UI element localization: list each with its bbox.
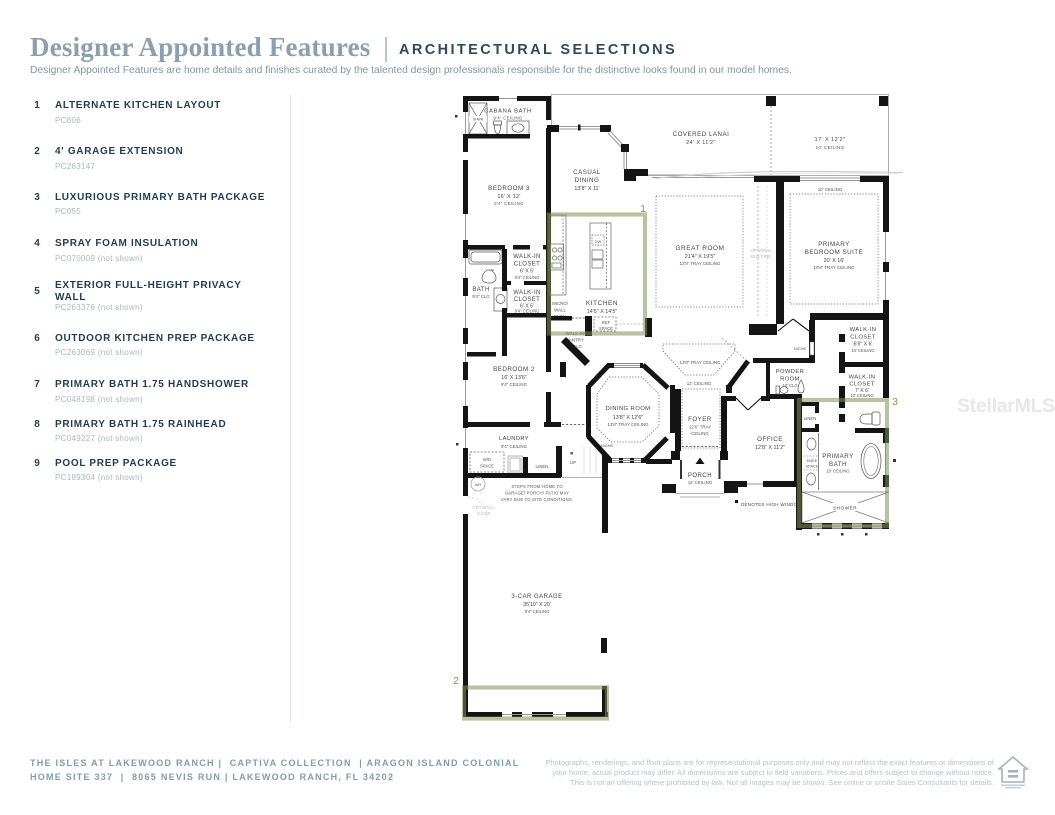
- svg-text:KNEE: KNEE: [807, 458, 818, 463]
- svg-text:CLOSET: CLOSET: [849, 382, 875, 388]
- svg-text:LINEN: LINEN: [536, 464, 549, 469]
- svg-text:6'6" X 6': 6'6" X 6': [854, 342, 873, 348]
- svg-text:VARY DUE TO SITE CONDITIONS.: VARY DUE TO SITE CONDITIONS.: [501, 497, 573, 502]
- svg-text:6' X 5': 6' X 5': [520, 269, 534, 275]
- svg-text:OFFICE: OFFICE: [757, 436, 783, 443]
- svg-text:FOYER: FOYER: [688, 416, 712, 423]
- svg-text:BEDROOM SUITE: BEDROOM SUITE: [805, 249, 863, 256]
- svg-text:PRIMARY: PRIMARY: [818, 241, 850, 248]
- svg-text:LINEN: LINEN: [804, 416, 816, 421]
- svg-text:10'8" TRAY CEILING: 10'8" TRAY CEILING: [814, 265, 856, 270]
- svg-text:GARAGE/ PORCH/ PATIO MAY: GARAGE/ PORCH/ PATIO MAY: [505, 491, 569, 496]
- svg-text:10' CLG: 10' CLG: [782, 383, 797, 388]
- svg-text:DINING ROOM: DINING ROOM: [606, 406, 651, 412]
- svg-text:DINING: DINING: [575, 177, 600, 184]
- svg-text:10' CEILING: 10' CEILING: [826, 469, 849, 474]
- svg-text:COVERED LANAI: COVERED LANAI: [673, 131, 730, 138]
- svg-text:13'8" TRAY CEILING: 13'8" TRAY CEILING: [680, 360, 722, 365]
- svg-text:DENOTES HIGH WINDOW: DENOTES HIGH WINDOW: [741, 502, 802, 507]
- svg-text:1: 1: [640, 203, 646, 215]
- svg-text:10' CEILING: 10' CEILING: [850, 393, 873, 398]
- svg-text:9'4" CEILING: 9'4" CEILING: [501, 444, 528, 449]
- svg-text:17' X 12'2": 17' X 12'2": [815, 137, 846, 143]
- svg-text:16' X 12': 16' X 12': [497, 194, 520, 200]
- svg-text:POWDER: POWDER: [776, 369, 805, 375]
- svg-text:OPTIONAL: OPTIONAL: [750, 248, 772, 253]
- svg-text:STEPS FROM HOME TO: STEPS FROM HOME TO: [511, 484, 563, 489]
- svg-text:BEDROOM 2: BEDROOM 2: [493, 366, 535, 373]
- svg-text:WH: WH: [475, 483, 482, 487]
- svg-text:10' CEILING: 10' CEILING: [818, 187, 843, 192]
- svg-text:BEDROOM 3: BEDROOM 3: [488, 185, 530, 192]
- svg-text:12'8" TRAY CEILING: 12'8" TRAY CEILING: [608, 422, 650, 427]
- svg-text:WALK-IN: WALK-IN: [849, 375, 876, 381]
- svg-text:PRIMARY: PRIMARY: [822, 453, 854, 460]
- svg-text:9'4" CEILING: 9'4" CEILING: [501, 382, 528, 387]
- svg-text:WALK-IN: WALK-IN: [513, 290, 541, 296]
- svg-text:9'4" CEILING: 9'4" CEILING: [515, 275, 540, 280]
- svg-text:3: 3: [892, 396, 898, 408]
- svg-text:35'10" X 20': 35'10" X 20': [523, 602, 550, 608]
- svg-text:KITCHEN: KITCHEN: [586, 300, 618, 307]
- svg-text:LAUNDRY: LAUNDRY: [499, 436, 529, 442]
- svg-text:OPTIONAL: OPTIONAL: [472, 505, 496, 510]
- svg-text:13'8" X 12'6": 13'8" X 12'6": [613, 415, 644, 421]
- svg-text:UP: UP: [570, 460, 576, 465]
- svg-text:WALL: WALL: [554, 308, 566, 313]
- svg-text:BATH: BATH: [829, 461, 847, 468]
- svg-text:SHOWER: SHOWER: [833, 506, 857, 512]
- svg-text:CASUAL: CASUAL: [573, 169, 601, 176]
- svg-text:ROOM: ROOM: [780, 377, 800, 383]
- svg-text:9'4" CEILING: 9'4" CEILING: [493, 116, 522, 121]
- svg-text:StellarMLS: StellarMLS: [957, 395, 1055, 417]
- svg-text:9'4" CEILING: 9'4" CEILING: [494, 201, 524, 206]
- svg-text:10' CEILING: 10' CEILING: [851, 348, 874, 353]
- svg-text:14'5" X 14'5": 14'5" X 14'5": [587, 309, 618, 315]
- svg-text:12'6" TRAY: 12'6" TRAY: [689, 425, 711, 430]
- svg-text:SHWR: SHWR: [473, 118, 484, 122]
- svg-text:CLOSET: CLOSET: [850, 335, 876, 341]
- svg-text:CABANA BATH: CABANA BATH: [484, 109, 532, 115]
- svg-text:12'8" X 11'2": 12'8" X 11'2": [755, 445, 785, 451]
- svg-text:3-CAR GARAGE: 3-CAR GARAGE: [511, 594, 562, 600]
- svg-text:24' X 11'2": 24' X 11'2": [686, 140, 716, 146]
- svg-text:PORCH: PORCH: [688, 473, 712, 479]
- svg-text:21'4" X 19'5": 21'4" X 19'5": [685, 254, 716, 260]
- svg-text:9'4" CLG: 9'4" CLG: [472, 294, 490, 299]
- svg-text:12' CEILING: 12' CEILING: [688, 480, 713, 485]
- svg-text:9'4" CEILING: 9'4" CEILING: [525, 609, 550, 614]
- svg-text:WALK-IN: WALK-IN: [513, 254, 541, 260]
- svg-text:CEILING: CEILING: [691, 431, 709, 436]
- svg-text:BUILT-INS: BUILT-INS: [751, 254, 771, 259]
- svg-text:MICRO/: MICRO/: [552, 301, 569, 306]
- svg-text:DW: DW: [595, 240, 602, 244]
- svg-text:9'4" CEILING: 9'4" CEILING: [515, 309, 540, 314]
- svg-text:SPACE: SPACE: [480, 464, 494, 469]
- svg-text:REF: REF: [602, 320, 611, 325]
- svg-text:CLOSET: CLOSET: [514, 262, 540, 268]
- svg-text:WALK-IN: WALK-IN: [850, 327, 877, 333]
- svg-text:GREAT ROOM: GREAT ROOM: [675, 245, 724, 252]
- svg-text:SPACE: SPACE: [599, 326, 613, 331]
- svg-text:12'9" TRAY CEILING: 12'9" TRAY CEILING: [680, 261, 722, 266]
- svg-text:BATH: BATH: [472, 287, 489, 293]
- svg-text:13'8" X 11': 13'8" X 11': [574, 186, 599, 192]
- svg-text:16' X 13'6": 16' X 13'6": [501, 375, 527, 381]
- svg-text:2: 2: [453, 675, 459, 687]
- svg-text:NICHE: NICHE: [601, 443, 614, 448]
- svg-text:10' CEILING: 10' CEILING: [816, 145, 845, 150]
- svg-text:W/D: W/D: [483, 457, 491, 462]
- svg-text:CLOSET: CLOSET: [514, 297, 540, 303]
- svg-text:NICHE: NICHE: [794, 346, 807, 351]
- svg-text:SPACE: SPACE: [806, 464, 819, 469]
- svg-text:DOOR: DOOR: [477, 511, 491, 516]
- svg-text:20' X 16': 20' X 16': [824, 258, 845, 264]
- svg-text:12' CEILING: 12' CEILING: [687, 381, 712, 386]
